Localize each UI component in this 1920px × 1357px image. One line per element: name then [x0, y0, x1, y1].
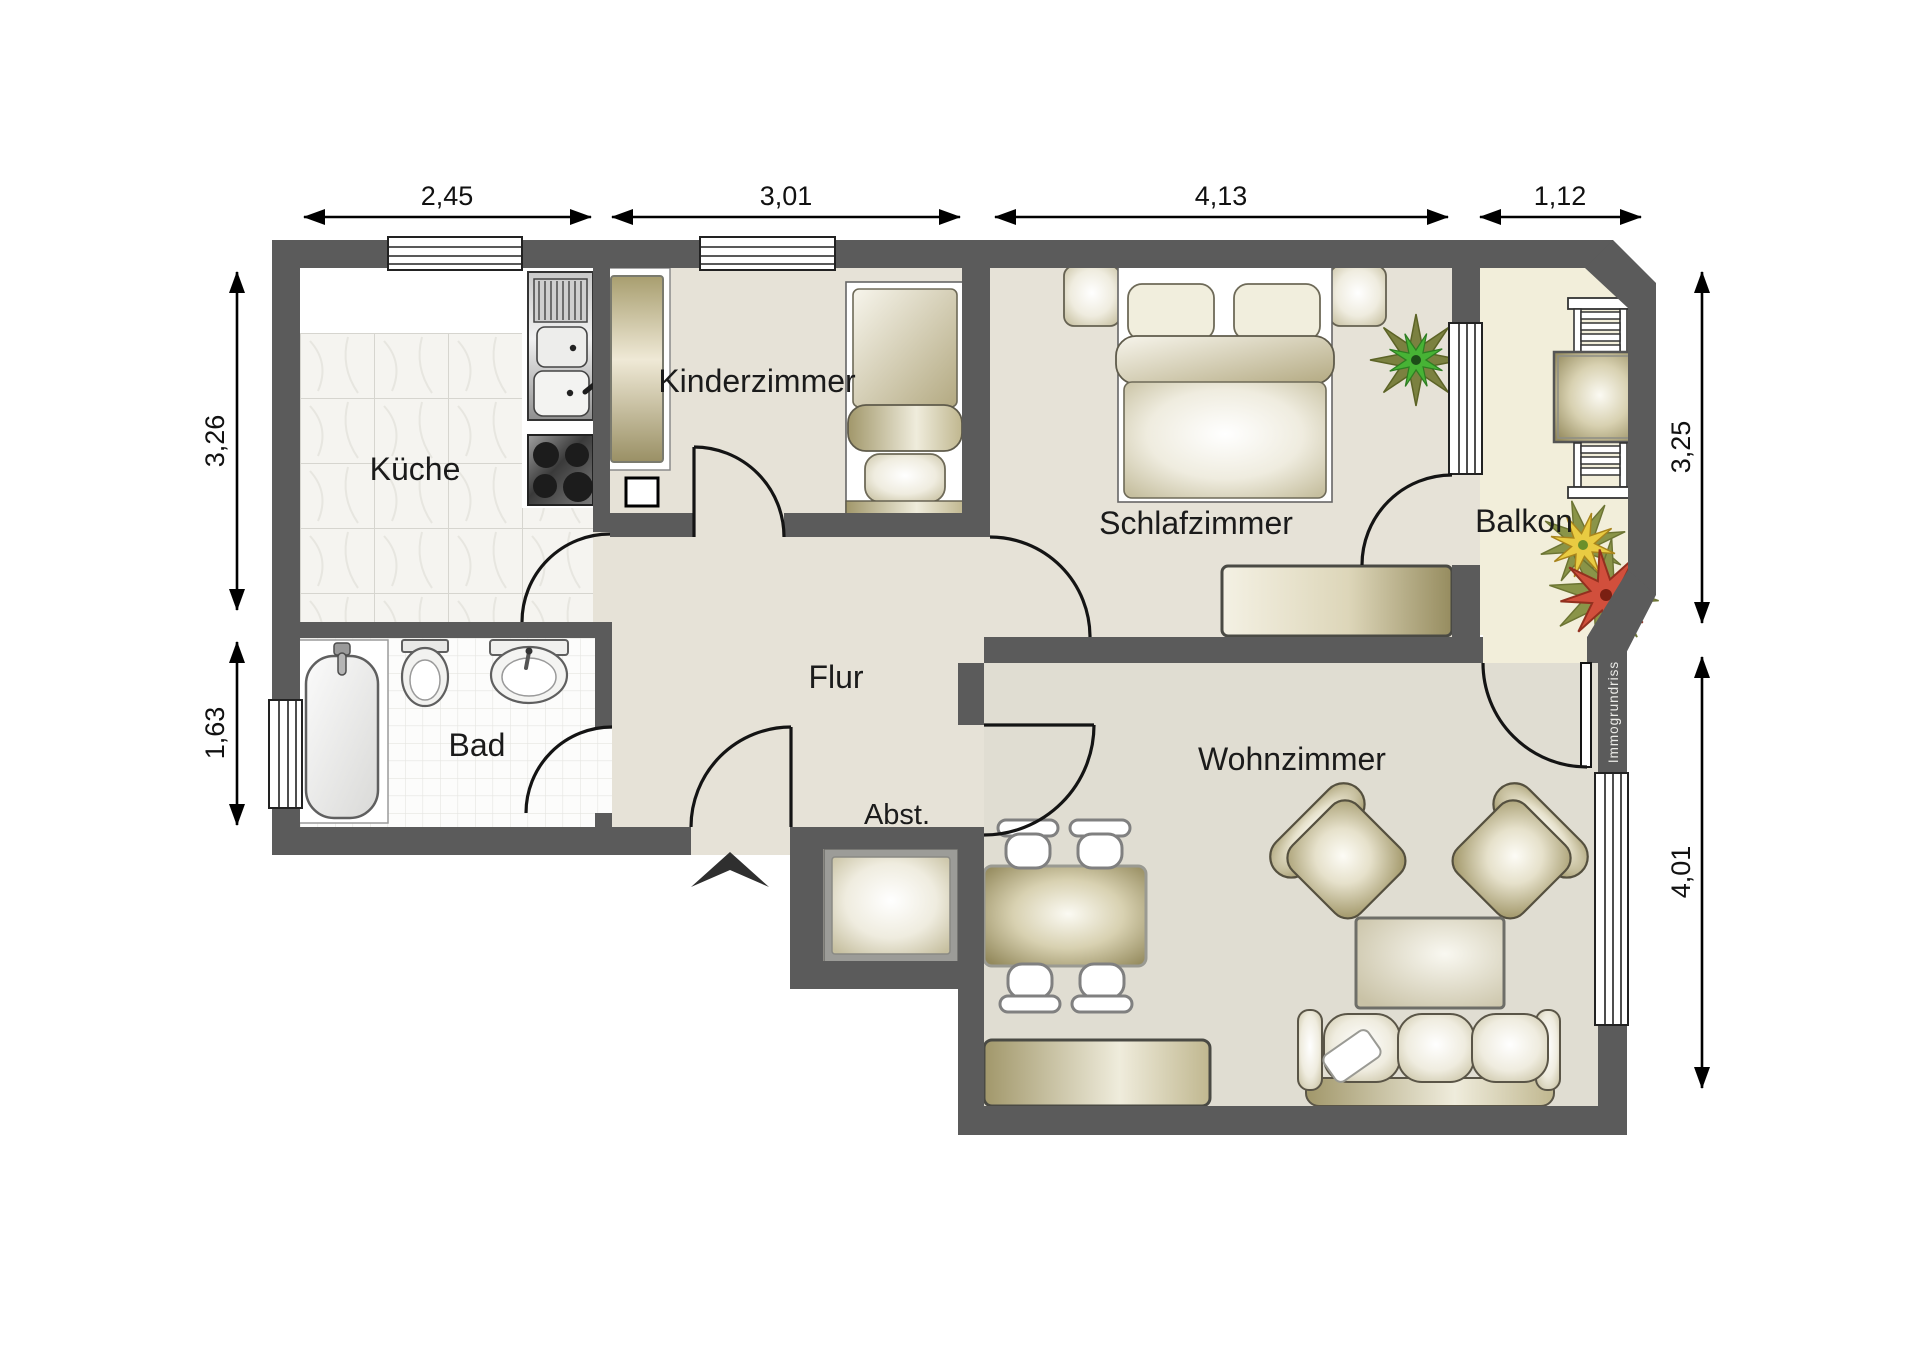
wall-kinderzimmer-bottom-left	[610, 513, 694, 537]
room-label-wohnzimmer: Wohnzimmer	[1198, 741, 1386, 777]
toilet	[402, 640, 448, 706]
sink-basin-1	[537, 327, 587, 367]
window-kueche	[388, 237, 522, 270]
wall-schlafzimmer-balkon-upper	[1452, 268, 1480, 325]
kitchen-stove	[528, 435, 593, 505]
nightstand-right	[1330, 266, 1386, 326]
wall-bad-bottom	[272, 827, 691, 855]
dining-table	[984, 866, 1146, 966]
wall-balkon-bottom	[1587, 637, 1627, 663]
duvet	[1124, 382, 1326, 498]
room-label-bad: Bad	[449, 727, 506, 763]
double-bed	[1116, 266, 1334, 502]
dim-label-right-1: 3,25	[1666, 421, 1696, 474]
entrance-arrow	[691, 852, 769, 887]
sideboard-schlafzimmer	[1222, 566, 1452, 636]
room-label-balkon: Balkon	[1475, 503, 1573, 539]
floor-plan-svg: 2,45 3,01 4,13 1,12 3,26 1,63 3,25 4,01 …	[0, 0, 1920, 1357]
pillow-left	[1128, 284, 1214, 340]
wall-schlafzimmer-balkon-lower	[1452, 565, 1480, 637]
kueche-tiles-2	[522, 508, 593, 622]
wall-bad-flur-upper	[595, 638, 612, 727]
burner	[533, 442, 559, 468]
dim-label-left-1: 3,26	[200, 415, 230, 468]
wall-wohnzimmer-bottom	[958, 1106, 1627, 1135]
wall-balkon-right	[1628, 283, 1656, 595]
living-sideboard	[984, 1040, 1210, 1106]
child-bed-pillow	[865, 454, 945, 502]
window-bad	[269, 700, 302, 808]
wall-kinderzimmer-bottom-right	[784, 513, 962, 537]
burner	[533, 474, 557, 498]
wall-wohnzimmer-left	[958, 849, 984, 1106]
sink-drainer	[534, 279, 587, 322]
dim-label-left-2: 1,63	[200, 707, 230, 760]
window-wohnzimmer	[1595, 773, 1628, 1025]
room-label-kinderzimmer: Kinderzimmer	[658, 363, 856, 399]
balcony-chair-top	[1568, 298, 1632, 353]
wall-kueche-kinderzimmer	[593, 268, 610, 532]
dining-chair	[1072, 964, 1132, 1012]
child-bed-footboard	[846, 501, 964, 515]
wall-abst-bottom	[790, 961, 984, 989]
sofa	[1298, 1010, 1560, 1106]
sofa-cushion	[1398, 1014, 1474, 1082]
sofa-armrest-left	[1298, 1010, 1322, 1090]
dim-label-top-2: 3,01	[760, 181, 813, 211]
wall-schlafzimmer-bottom	[984, 637, 1483, 663]
dim-label-top-3: 4,13	[1195, 181, 1248, 211]
room-label-schlafzimmer: Schlafzimmer	[1099, 505, 1293, 541]
dim-label-top-4: 1,12	[1534, 181, 1587, 211]
dining-chair	[1070, 820, 1130, 868]
balkon-doorway-floor	[1483, 635, 1587, 663]
balcony-chair-bottom	[1568, 443, 1632, 498]
dining-chair	[1000, 964, 1060, 1012]
burner	[563, 472, 593, 502]
watermark-immogrundriss: Immogrundriss	[1606, 661, 1621, 763]
wall-kueche-bad	[272, 622, 612, 638]
wall-bad-flur-lower	[595, 813, 612, 827]
window-kinderzimmer	[700, 237, 835, 270]
child-bed-mattress	[853, 289, 957, 407]
storage-shelf	[824, 849, 958, 962]
room-label-flur: Flur	[808, 659, 863, 695]
room-label-abstellraum: Abst.	[864, 799, 930, 831]
sofa-cushion	[1472, 1014, 1548, 1082]
sink-basin-2	[534, 371, 589, 416]
kinderzimmer-box	[626, 478, 658, 506]
window-schlafzimmer-balkon	[1449, 323, 1482, 474]
washbasin	[490, 640, 568, 703]
dim-label-right-2: 4,01	[1666, 846, 1696, 899]
bathtub	[296, 640, 388, 823]
coffee-table	[1356, 918, 1504, 1008]
dim-label-top-1: 2,45	[421, 181, 474, 211]
child-bed-blanket	[848, 405, 962, 451]
burner	[565, 443, 589, 467]
room-label-kueche: Küche	[370, 451, 461, 487]
pillow-right	[1234, 284, 1320, 340]
floor-plan-page: 2,45 3,01 4,13 1,12 3,26 1,63 3,25 4,01 …	[0, 0, 1920, 1357]
blanket-roll	[1116, 336, 1334, 384]
child-bed	[846, 282, 964, 515]
nightstand-left	[1064, 266, 1120, 326]
wall-kinderzimmer-schlafzimmer	[962, 268, 990, 537]
wall-flur-wohnzimmer	[958, 663, 984, 725]
